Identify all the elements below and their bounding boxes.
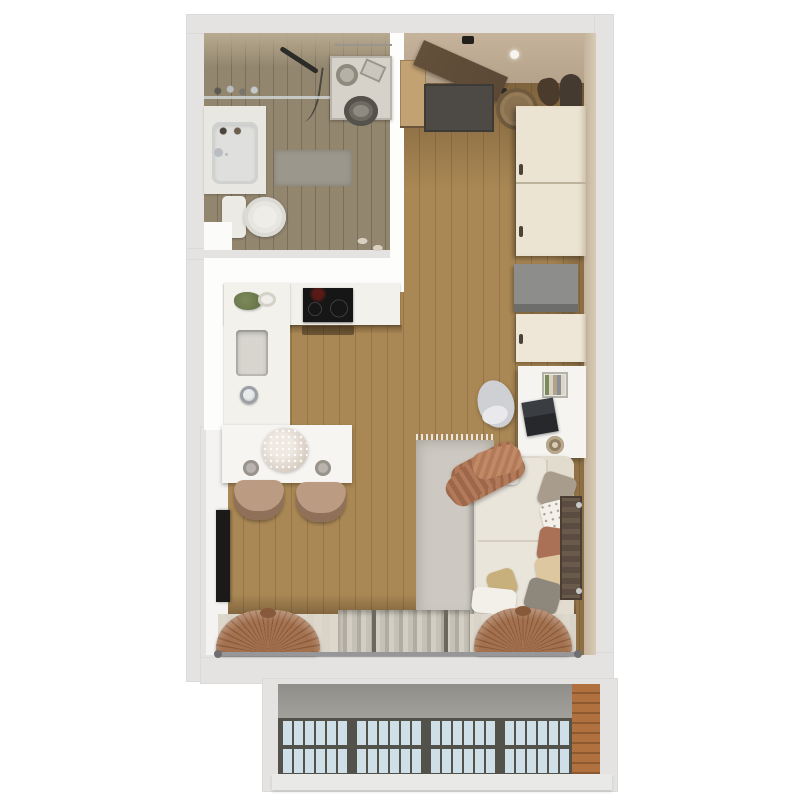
organizer-books: [545, 375, 565, 395]
sheer-curtain: [338, 610, 470, 654]
skylight-panel-3: [429, 721, 495, 773]
rod-finial-left: [214, 650, 222, 658]
ceiling-light: [510, 50, 519, 59]
toilet-bowl: [244, 197, 286, 237]
slippers: [354, 234, 388, 254]
bowl: [258, 292, 276, 307]
kitchen-sink: [236, 330, 268, 376]
doormat: [424, 84, 494, 132]
brick-pillar: [572, 684, 600, 776]
bath-mat: [274, 150, 352, 186]
kitchen-faucet: [240, 386, 258, 404]
wall-right: [594, 14, 614, 682]
atrium-sill: [272, 774, 612, 790]
rod-finial-right: [574, 650, 582, 658]
drape-knot-right: [515, 606, 531, 616]
wardrobe-handle-top: [519, 164, 523, 175]
skylight-panel-2: [355, 721, 421, 773]
shelf-bottles: [212, 82, 260, 100]
cream-cabinet: [516, 314, 586, 362]
plate-left: [243, 460, 259, 476]
radiator: [560, 496, 582, 600]
wall-tv: [216, 510, 230, 602]
cream-cabinet-handle: [519, 334, 523, 344]
oven-shadow: [302, 326, 354, 335]
flower-speckles: [262, 428, 308, 472]
sofa-seat-split: [478, 540, 546, 542]
window-mullion-left: [372, 610, 376, 654]
radiator-valve-bottom: [576, 588, 582, 594]
skylight-panel-4: [503, 721, 569, 773]
window-mullion-right: [444, 610, 448, 654]
gray-cabinet: [514, 264, 578, 312]
dining-chair-right: [296, 482, 346, 522]
rug-fringe-top: [416, 434, 494, 440]
basin-faucet: [214, 148, 223, 157]
bathroom-corner-wall: [204, 222, 232, 250]
door-hinge-icon: [462, 36, 474, 44]
cooktop-burners: [303, 288, 353, 322]
laundry-basket: [336, 64, 358, 86]
wall-top: [186, 14, 614, 34]
radiator-valve-top: [576, 502, 582, 508]
plate-right: [315, 460, 331, 476]
curtain-rod: [218, 652, 576, 656]
tall-wardrobe: [516, 106, 586, 256]
washer-drum: [344, 96, 378, 126]
laptop: [521, 397, 558, 436]
dining-chair-left: [234, 480, 284, 520]
wardrobe-handle-bottom: [519, 226, 523, 237]
drape-knot-left: [260, 608, 276, 618]
mug: [546, 436, 564, 454]
concrete-parapet: [278, 684, 600, 720]
soap-items: [218, 126, 244, 136]
wardrobe-split: [516, 182, 586, 184]
skylight-panel-1: [281, 721, 347, 773]
shoe-cabinet: [400, 60, 426, 128]
floor-plan-canvas: [0, 0, 800, 800]
